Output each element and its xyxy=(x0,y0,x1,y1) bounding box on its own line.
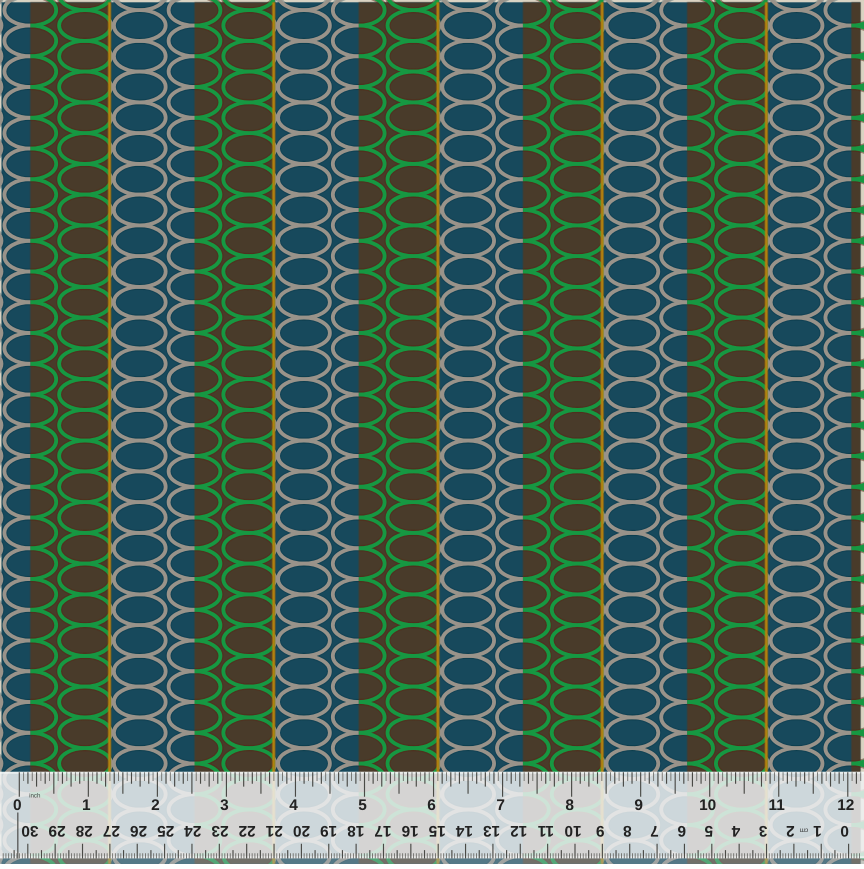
svg-text:1: 1 xyxy=(813,822,822,839)
svg-text:28: 28 xyxy=(75,822,93,839)
svg-text:20: 20 xyxy=(293,822,310,839)
svg-text:12: 12 xyxy=(837,797,854,814)
svg-text:15: 15 xyxy=(428,822,446,839)
svg-text:9: 9 xyxy=(634,797,643,814)
svg-text:10: 10 xyxy=(564,822,581,839)
svg-text:22: 22 xyxy=(239,822,256,839)
svg-text:26: 26 xyxy=(130,822,147,839)
svg-text:0: 0 xyxy=(13,797,22,814)
svg-text:8: 8 xyxy=(565,797,574,814)
svg-text:29: 29 xyxy=(48,822,65,839)
svg-text:16: 16 xyxy=(402,822,419,839)
svg-text:cm: cm xyxy=(800,827,809,834)
svg-text:19: 19 xyxy=(320,822,337,839)
svg-text:9: 9 xyxy=(596,822,605,839)
svg-text:7: 7 xyxy=(496,797,505,814)
svg-text:11: 11 xyxy=(537,822,554,839)
svg-text:6: 6 xyxy=(427,797,436,814)
svg-text:27: 27 xyxy=(103,822,120,839)
svg-text:21: 21 xyxy=(265,822,283,839)
svg-text:2: 2 xyxy=(151,797,160,814)
svg-text:30: 30 xyxy=(21,822,38,839)
svg-text:5: 5 xyxy=(704,822,713,839)
svg-text:11: 11 xyxy=(769,797,786,814)
svg-text:8: 8 xyxy=(623,822,632,839)
svg-text:23: 23 xyxy=(211,822,228,839)
svg-text:inch: inch xyxy=(29,792,41,799)
svg-text:6: 6 xyxy=(677,822,686,839)
svg-text:4: 4 xyxy=(289,797,298,814)
svg-text:3: 3 xyxy=(759,822,768,839)
svg-text:18: 18 xyxy=(347,822,365,839)
svg-text:4: 4 xyxy=(731,822,740,839)
svg-text:10: 10 xyxy=(699,797,716,814)
svg-text:12: 12 xyxy=(510,822,527,839)
svg-text:7: 7 xyxy=(650,822,659,839)
svg-text:3: 3 xyxy=(220,797,229,814)
svg-text:24: 24 xyxy=(184,822,202,839)
svg-text:1: 1 xyxy=(82,797,91,814)
svg-text:17: 17 xyxy=(374,822,391,839)
svg-text:0: 0 xyxy=(840,822,849,839)
svg-text:2: 2 xyxy=(786,822,795,839)
svg-text:5: 5 xyxy=(358,797,367,814)
svg-text:14: 14 xyxy=(455,822,473,839)
svg-text:25: 25 xyxy=(157,822,175,839)
svg-text:13: 13 xyxy=(483,822,500,839)
